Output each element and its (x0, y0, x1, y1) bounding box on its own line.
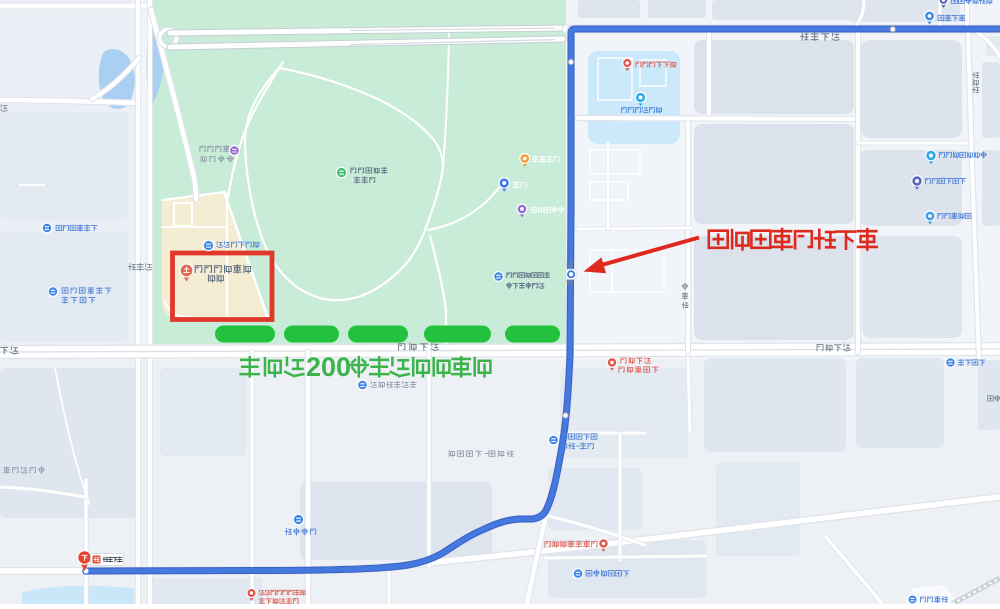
svg-text:200: 200 (306, 352, 351, 382)
